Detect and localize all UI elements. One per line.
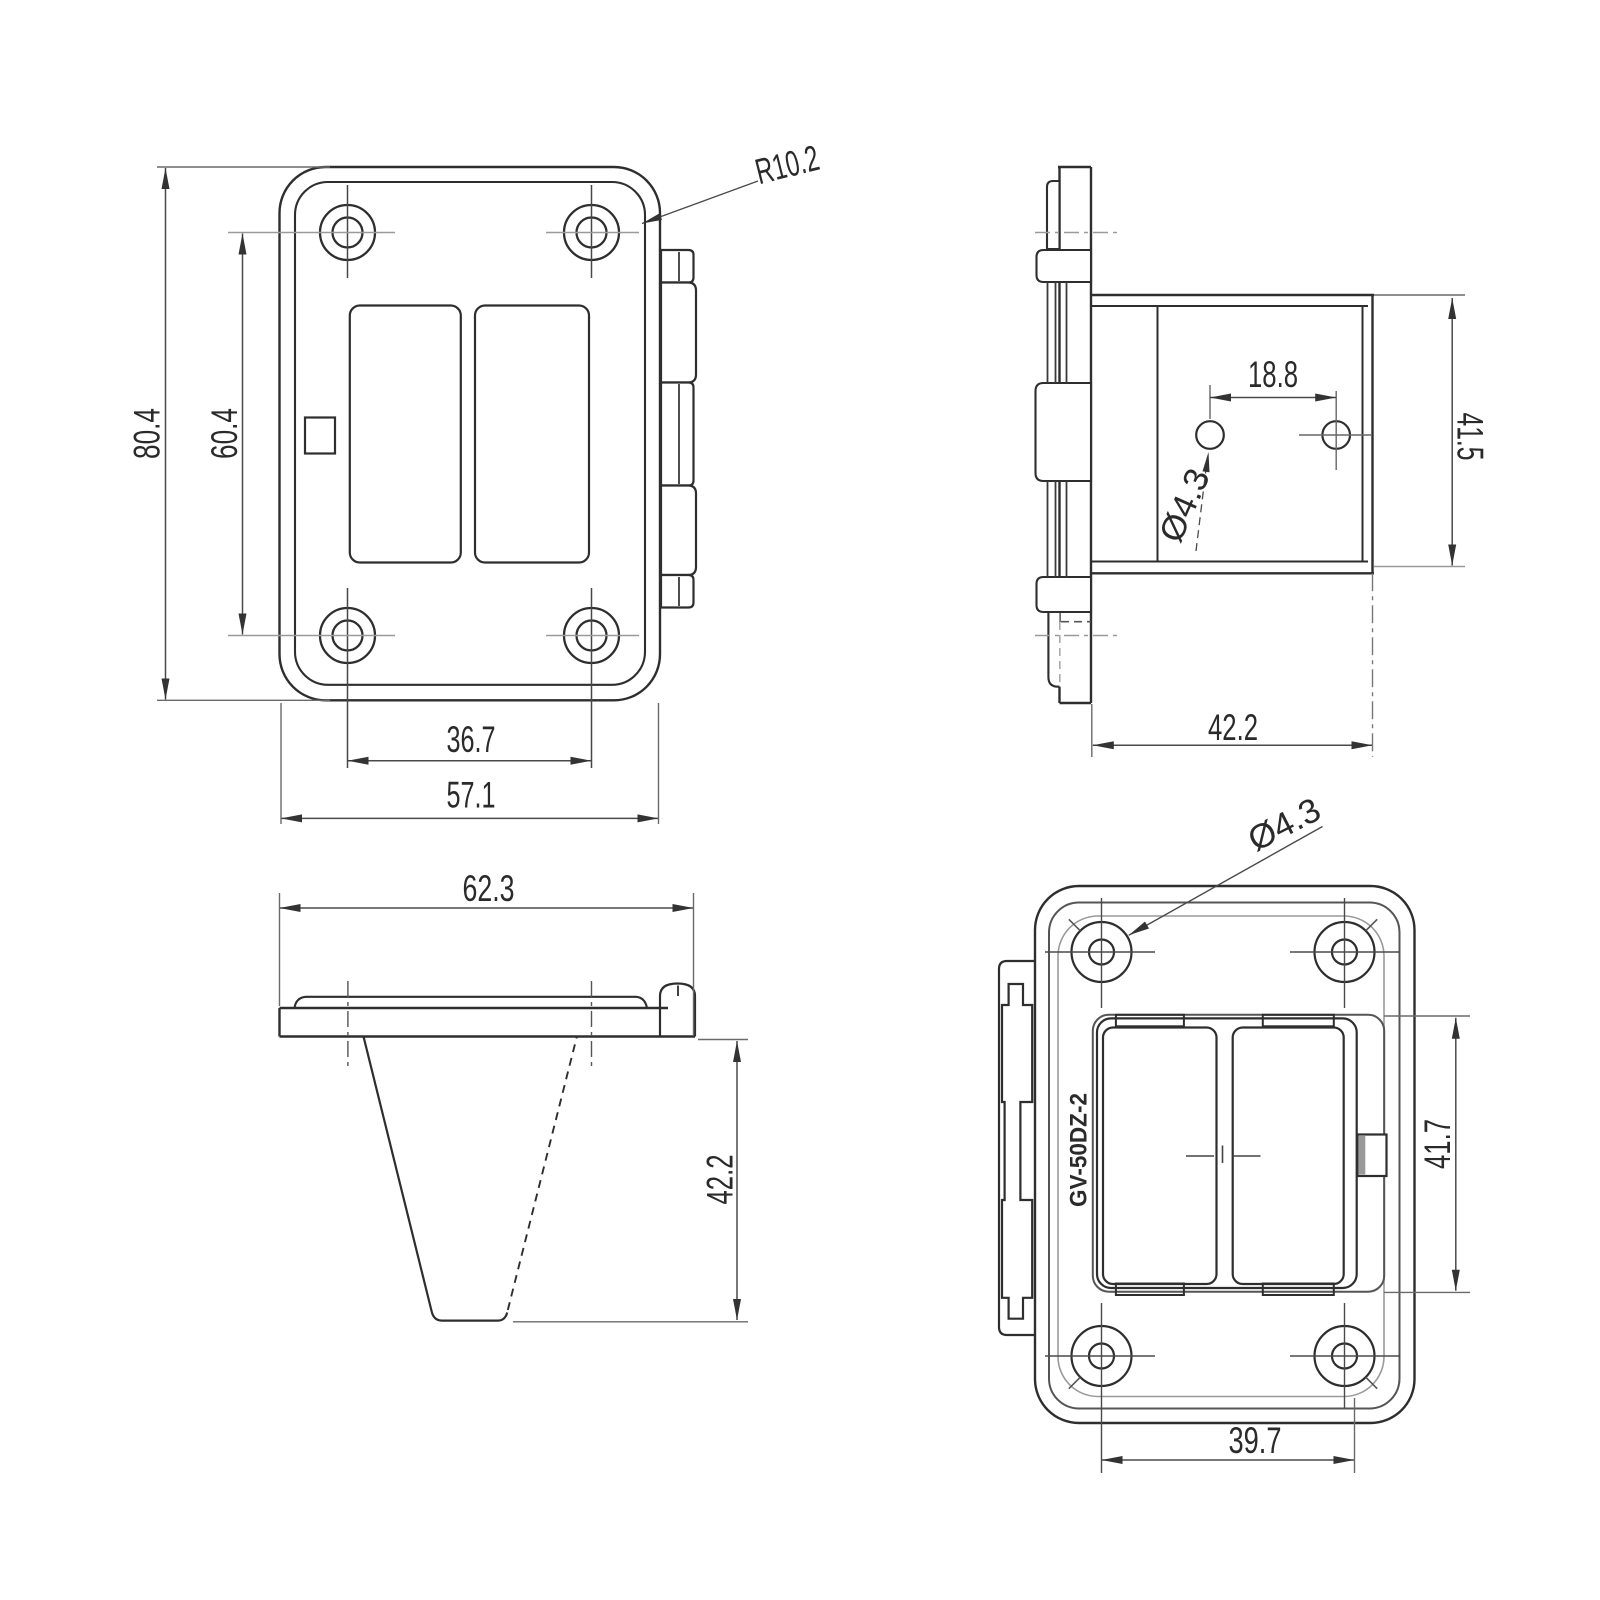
svg-text:60.4: 60.4 (204, 408, 245, 459)
svg-text:42.2: 42.2 (700, 1155, 741, 1205)
svg-text:57.1: 57.1 (447, 775, 496, 816)
svg-text:39.7: 39.7 (1229, 1420, 1282, 1461)
svg-text:62.3: 62.3 (463, 868, 515, 909)
svg-text:41.5: 41.5 (1450, 413, 1491, 461)
svg-text:36.7: 36.7 (447, 719, 496, 760)
svg-text:41.7: 41.7 (1417, 1119, 1458, 1169)
svg-text:18.8: 18.8 (1248, 354, 1298, 395)
svg-text:42.2: 42.2 (1208, 707, 1258, 748)
svg-text:GV-50DZ-2: GV-50DZ-2 (1066, 1093, 1093, 1207)
svg-text:80.4: 80.4 (127, 408, 168, 459)
